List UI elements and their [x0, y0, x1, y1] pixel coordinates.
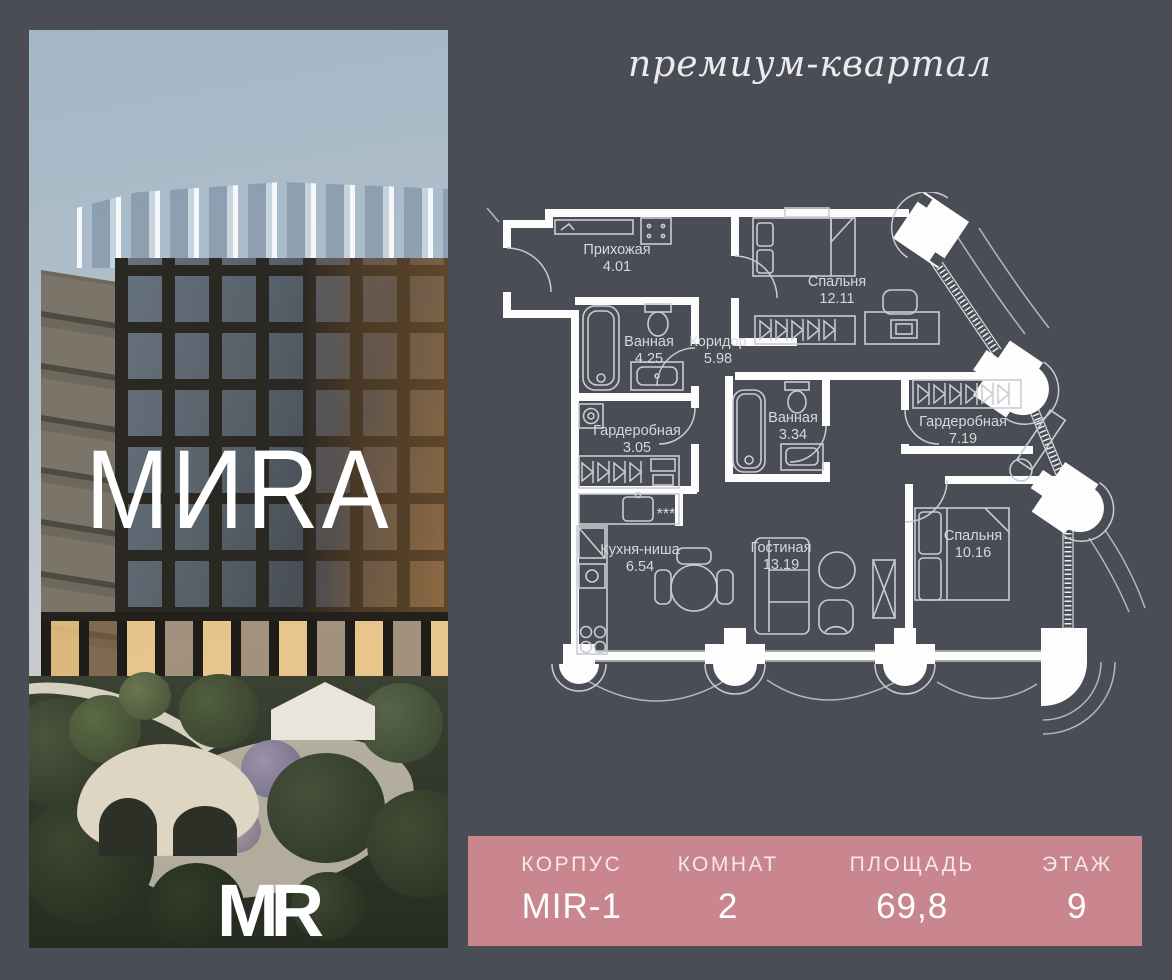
- room-label: Спальня: [808, 274, 866, 290]
- info-label: ПЛОЩАДЬ: [850, 853, 975, 877]
- pavilion-arch: [173, 806, 237, 856]
- room-area: 13.19: [763, 557, 799, 573]
- garden-tent: [271, 682, 375, 740]
- room-area: 12.11: [819, 291, 854, 307]
- room-area: 4.01: [603, 259, 631, 275]
- floor-plan-drawing: Прихожая 4.01 Спальня 12.11 Коридор 5.98…: [485, 192, 1165, 777]
- room-label: Прихожая: [583, 242, 650, 258]
- info-col-floor: ЭТАЖ 9: [1042, 836, 1113, 946]
- room-label: Коридор: [689, 334, 746, 350]
- room-area: 6.54: [626, 559, 654, 575]
- room-area: 7.19: [949, 431, 977, 447]
- tree: [179, 674, 259, 748]
- room-label: Гостиная: [751, 540, 812, 556]
- info-label: ЭТАЖ: [1042, 853, 1113, 877]
- room-area: 3.05: [623, 440, 651, 456]
- info-value: 2: [678, 887, 779, 927]
- info-value: 9: [1042, 887, 1113, 927]
- room-area: 5.98: [704, 351, 732, 367]
- info-col-rooms: КОМНАТ 2: [678, 836, 779, 946]
- mr-logo: MR: [217, 874, 316, 948]
- info-label: КОМНАТ: [678, 853, 779, 877]
- tree: [119, 672, 171, 720]
- info-bar: КОРПУС MIR-1 КОМНАТ 2 ПЛОЩАДЬ 69,8 ЭТАЖ …: [468, 836, 1142, 946]
- info-value: MIR-1: [521, 887, 622, 927]
- building-glass-crown: [77, 182, 448, 268]
- room-label: Гардеробная: [919, 414, 1007, 430]
- info-value: 69,8: [850, 887, 975, 927]
- room-label: Спальня: [944, 528, 1002, 544]
- stove-symbol: ***: [657, 506, 676, 523]
- room-label: Кухня-ниша: [600, 542, 680, 558]
- room-label: Гардеробная: [593, 423, 681, 439]
- info-label: КОРПУС: [521, 853, 622, 877]
- room-area: 10.16: [955, 545, 991, 561]
- brand-wordmark: МИRA: [29, 434, 448, 546]
- room-label: Ванная: [624, 334, 674, 350]
- info-col-korpus: КОРПУС MIR-1: [521, 836, 622, 946]
- building-photo: МИRA MR: [29, 30, 448, 948]
- page-title: премиум-квартал: [460, 44, 1160, 85]
- room-area: 3.34: [779, 427, 807, 443]
- room-label: Ванная: [768, 410, 818, 426]
- room-area: 4.25: [635, 351, 663, 367]
- floor-plan: Прихожая 4.01 Спальня 12.11 Коридор 5.98…: [485, 192, 1165, 777]
- pavilion-arch: [99, 798, 157, 856]
- info-col-area: ПЛОЩАДЬ 69,8: [850, 836, 975, 946]
- flyer-page: { "page": { "bg": "#4b4d56" }, "header":…: [0, 0, 1172, 980]
